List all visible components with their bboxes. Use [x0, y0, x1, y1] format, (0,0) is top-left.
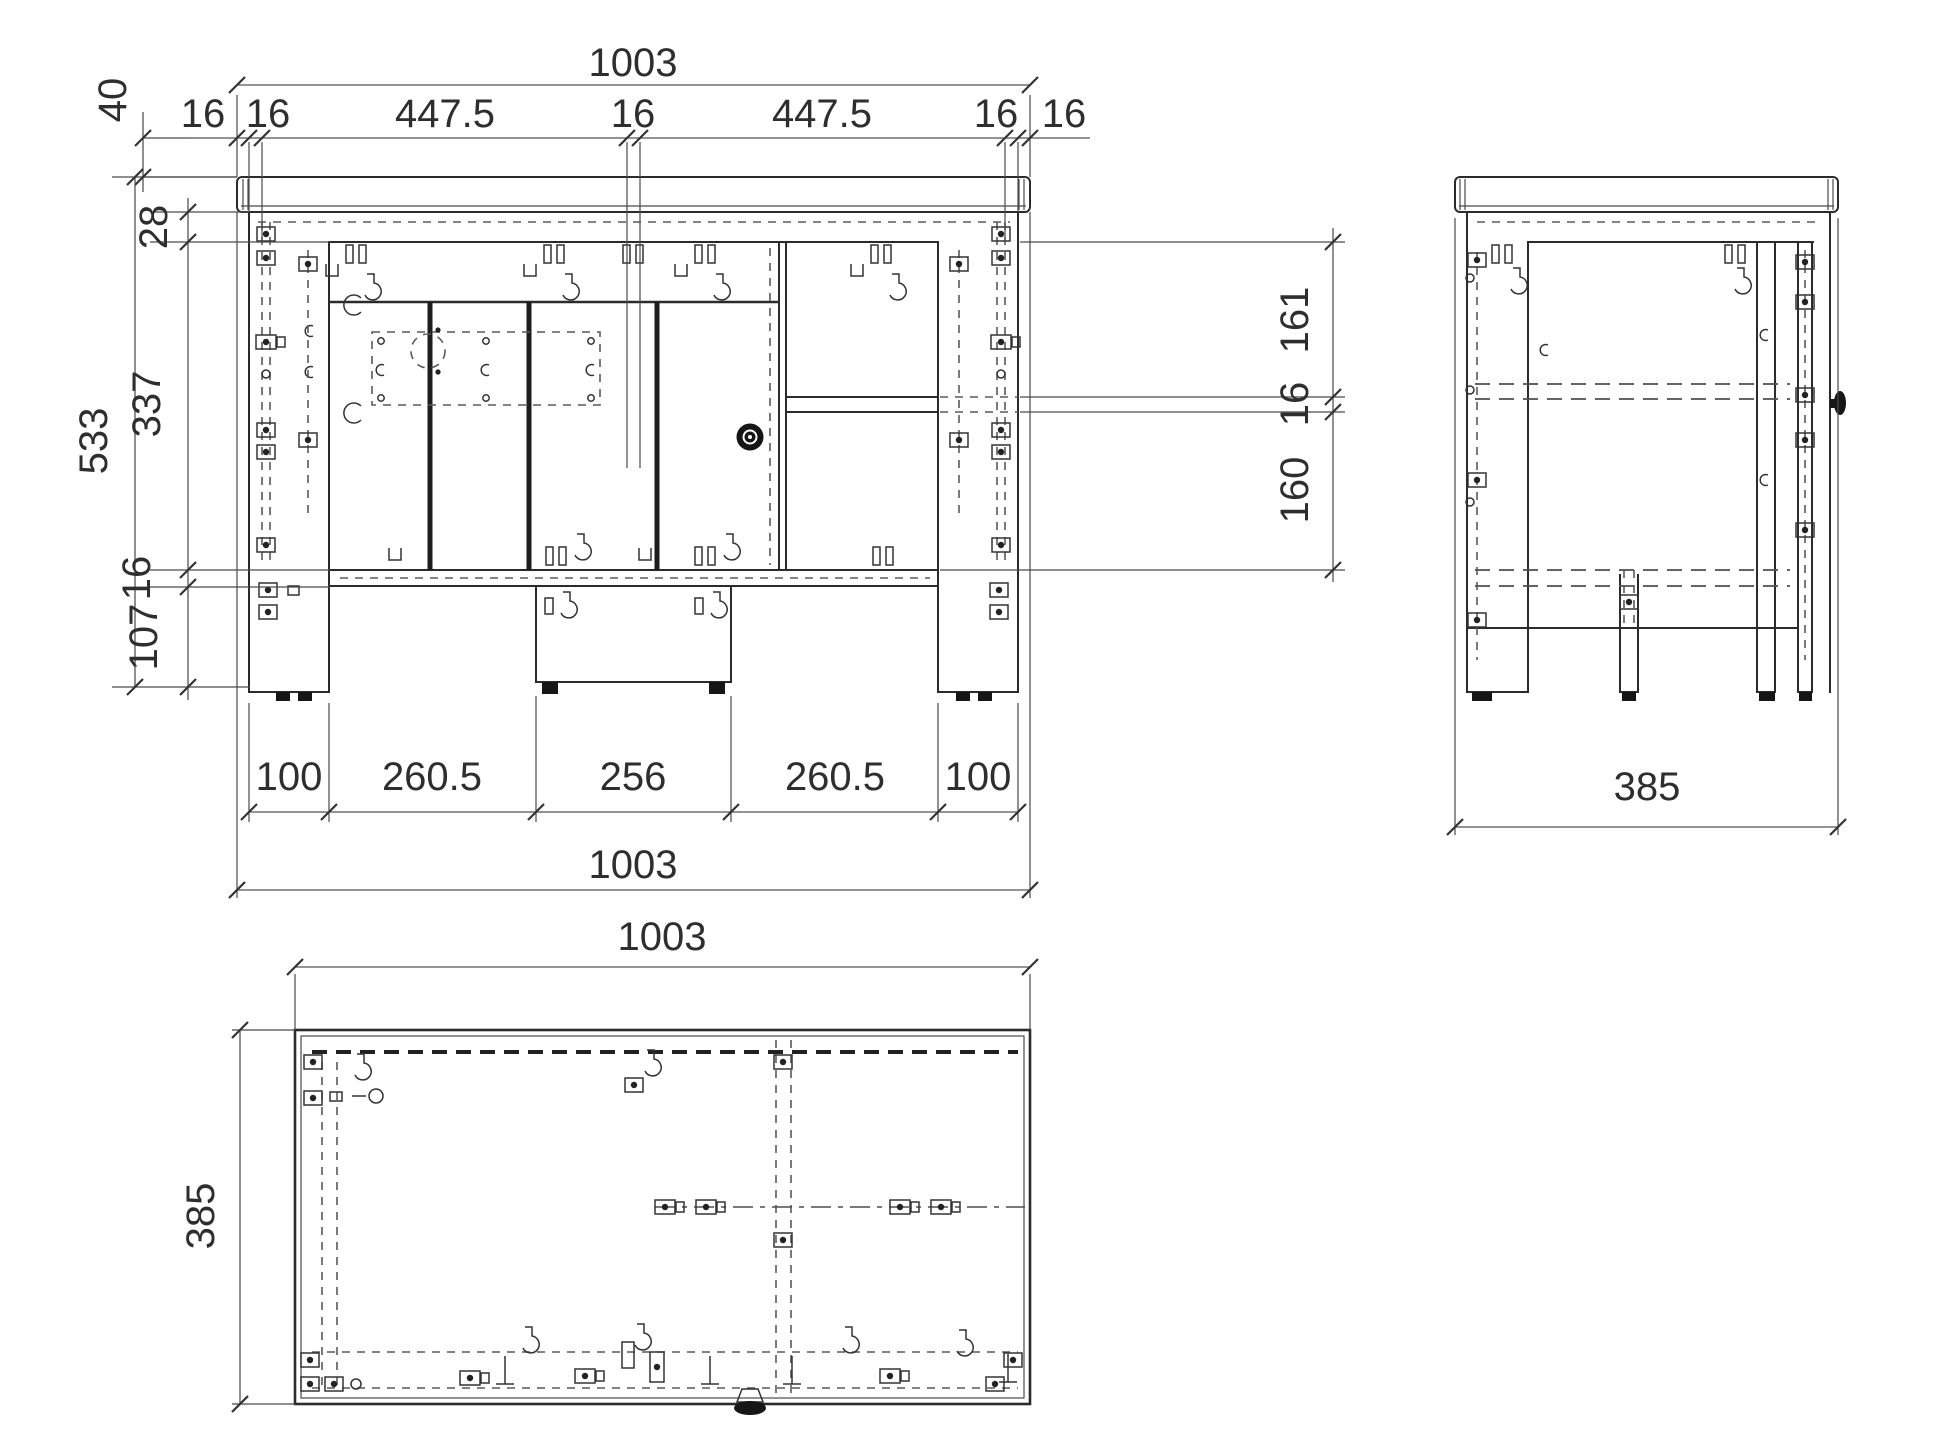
plinth-foot: [542, 682, 558, 694]
foot-glide: [1622, 692, 1636, 701]
plan-outline: [295, 1030, 1030, 1404]
foot-glide: [276, 692, 290, 701]
side-fittings: [1466, 245, 1846, 660]
dim-front-chain-top-2: 16: [246, 92, 291, 136]
dim-front-bottom-panel: 16: [115, 556, 159, 601]
dim-front-chain-top-7: 16: [1042, 92, 1087, 136]
foot-glide: [956, 692, 970, 701]
front-door-block: [305, 242, 786, 570]
side-view: 385: [1447, 177, 1846, 835]
dim-front-chain-top-5: 447.5: [772, 92, 872, 136]
dim-front-rail-height: 28: [132, 205, 176, 250]
side-top-panel: [1455, 177, 1838, 212]
dim-front-chain-bottom-1: 100: [256, 755, 323, 799]
dim-front-chain-top-3: 447.5: [395, 92, 495, 136]
foot-glide: [978, 692, 992, 701]
hinge-plate-arc: [344, 295, 361, 315]
front-leg-fittings: [256, 222, 1020, 560]
dim-front-overall-width-bottom: 1003: [589, 843, 678, 887]
foot-glide: [298, 692, 312, 701]
dim-front-chain-top-1: 16: [181, 92, 226, 136]
dim-front-chain-top-4: 16: [611, 92, 656, 136]
foot-glide: [1759, 692, 1775, 701]
hidden-hardware-plate: [372, 332, 600, 405]
dim-plan-overall-width: 1003: [618, 915, 707, 959]
plinth-foot: [709, 682, 725, 694]
side-dimensions: 385: [1447, 218, 1846, 835]
door-knob: [737, 424, 764, 451]
dim-front-chain-bottom-5: 100: [945, 755, 1012, 799]
dim-front-overall-width-top: 1003: [589, 41, 678, 85]
technical-drawing-canvas: 1003 16 16 447.5 16 447.5 16 16 40 28 33…: [0, 0, 1940, 1454]
hinge-plate-arc: [344, 403, 361, 423]
dim-front-shelf-thickness: 16: [1273, 382, 1317, 427]
plan-hidden-lines: [312, 1040, 1025, 1396]
dim-front-overall-height: 533: [72, 408, 116, 475]
dim-front-top-panel-height: 40: [91, 78, 135, 123]
dim-front-plinth-height: 107: [122, 604, 166, 671]
front-rail-fittings: [326, 245, 906, 300]
dim-front-chain-bottom-3: 256: [600, 755, 667, 799]
foot-glide: [1799, 692, 1812, 701]
front-bottom-fittings: [259, 534, 1008, 619]
plan-door-knob: [734, 1389, 766, 1415]
drawing-page: 1003 16 16 447.5 16 447.5 16 16 40 28 33…: [0, 0, 1940, 1454]
foot-glide: [1472, 692, 1492, 701]
plan-view: 1003 385: [179, 915, 1038, 1415]
front-view: 1003 16 16 447.5 16 447.5 16 16 40 28 33…: [72, 41, 1345, 898]
dim-plan-overall-depth: 385: [179, 1183, 223, 1250]
front-top-panel: [237, 177, 1030, 212]
dim-front-chain-bottom-4: 260.5: [785, 755, 885, 799]
dim-front-right-lower: 160: [1273, 457, 1317, 524]
dim-front-chain-bottom-2: 260.5: [382, 755, 482, 799]
dim-front-right-upper: 161: [1273, 287, 1317, 354]
front-shelf: [786, 397, 1018, 412]
plan-dimensions: 1003 385: [179, 915, 1038, 1412]
dim-side-overall-depth: 385: [1614, 765, 1681, 809]
side-carcass: [1467, 212, 1830, 701]
plan-fittings: [301, 1050, 1022, 1415]
dim-front-chain-top-6: 16: [974, 92, 1019, 136]
front-carcass: [249, 212, 1018, 701]
dim-front-interior-height: 337: [125, 371, 169, 438]
